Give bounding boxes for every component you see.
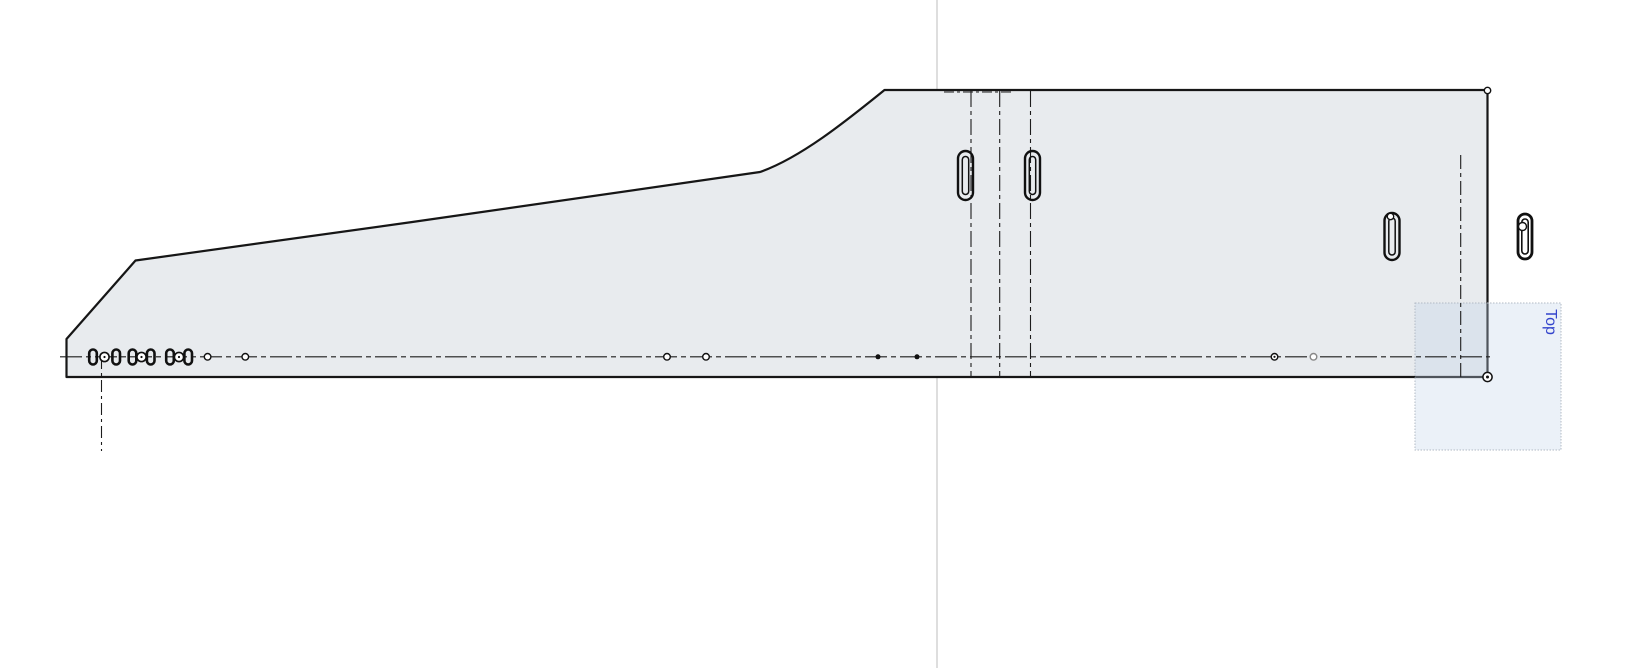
svg-text:Top: Top (1542, 309, 1559, 335)
